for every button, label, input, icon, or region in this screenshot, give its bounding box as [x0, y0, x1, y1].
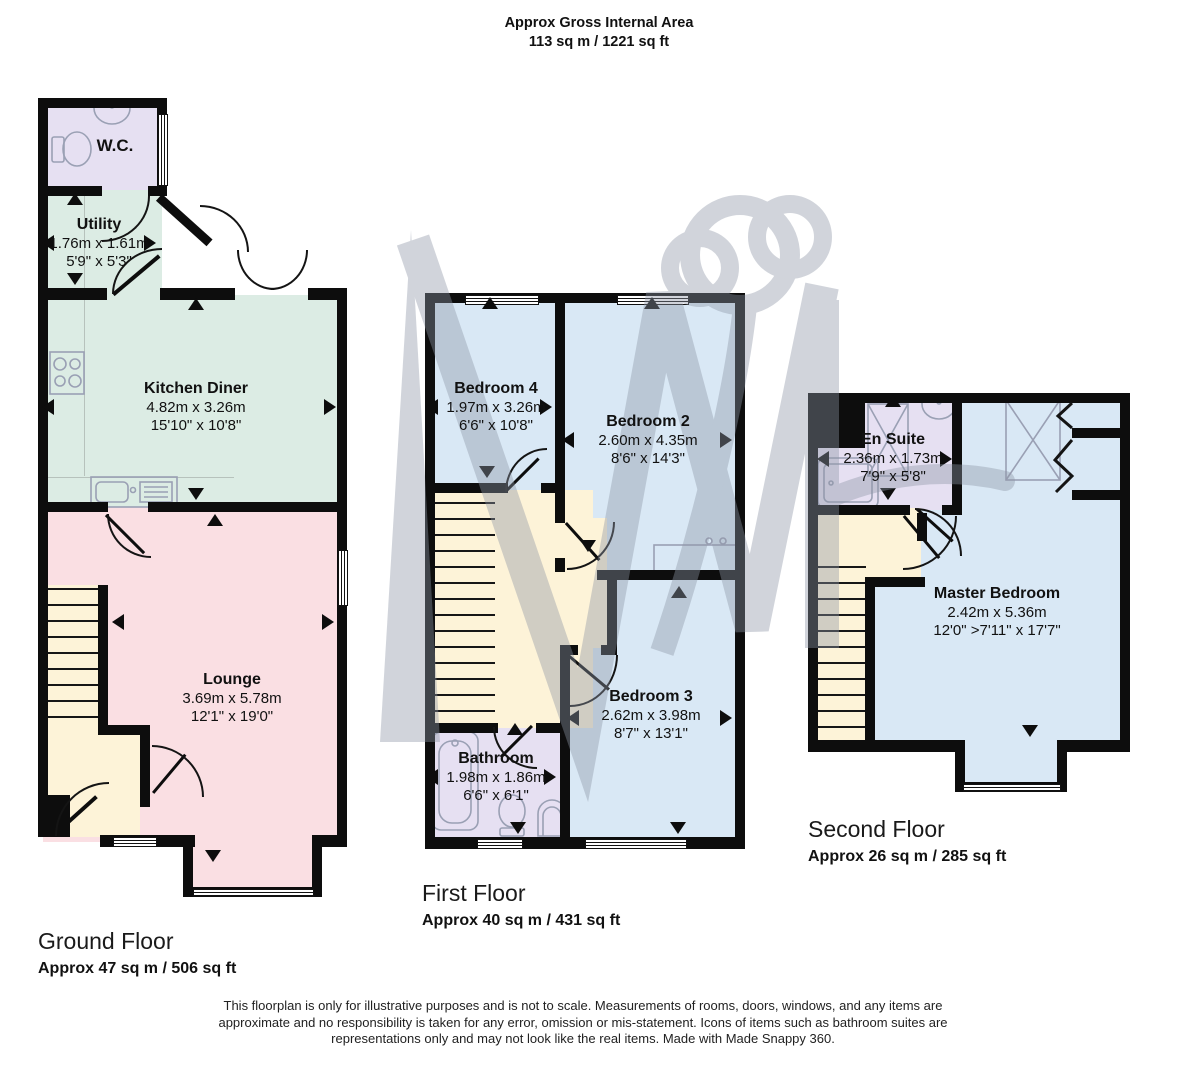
wall: [1072, 428, 1120, 438]
wall: [808, 740, 963, 752]
stairs: [433, 502, 495, 726]
room-name: W.C.: [97, 136, 134, 156]
room-dim-metric: 1.76m x 1.61m: [49, 235, 148, 253]
wall: [818, 505, 910, 515]
room-dim-imperial: 15'10" x 10'8": [144, 416, 248, 434]
room-label-bathroom: Bathroom 1.98m x 1.86m 6'6" x 6'1": [446, 750, 545, 804]
room-dim-metric: 2.36m x 1.73m: [843, 450, 942, 468]
direction-arrow-right: [720, 432, 732, 448]
room-name: Bathroom: [446, 750, 545, 769]
wall: [597, 570, 740, 580]
room-dim-imperial: 7'9" x 5'8": [843, 467, 942, 485]
floor-name: Ground Floor: [38, 928, 236, 955]
direction-arrow-up: [644, 297, 660, 309]
room-dim-imperial: 12'0" >7'11" x 17'7": [933, 621, 1060, 639]
direction-arrow-down: [510, 822, 526, 834]
room-name: Kitchen Diner: [144, 380, 248, 399]
wall: [555, 558, 565, 572]
room-dim-metric: 1.97m x 3.26m: [446, 399, 545, 417]
room-label-bedroom2: Bedroom 2 2.60m x 4.35m 8'6" x 14'3": [598, 413, 697, 467]
direction-arrow-down: [880, 488, 896, 500]
room-name: Bedroom 2: [598, 413, 697, 432]
room-name: En Suite: [843, 431, 942, 450]
wall: [1057, 740, 1130, 752]
room-dim-imperial: 12'1" x 19'0": [182, 707, 281, 725]
direction-arrow-left: [42, 399, 54, 415]
room-name: Bedroom 3: [601, 688, 700, 707]
room-name: Bedroom 4: [446, 380, 545, 399]
window: [158, 114, 168, 186]
door-swing-arc: [200, 205, 249, 252]
direction-arrow-down: [205, 850, 221, 862]
floor-name: First Floor: [422, 880, 620, 907]
window: [113, 837, 157, 847]
wall: [148, 502, 347, 512]
wall: [865, 577, 925, 587]
wall: [1120, 393, 1130, 750]
room-label-utility: Utility 1.76m x 1.61m 5'9" x 5'3": [49, 216, 148, 270]
direction-arrow-right: [720, 710, 732, 726]
room-label-bedroom4: Bedroom 4 1.97m x 3.26m 6'6" x 10'8": [446, 380, 545, 434]
wall: [98, 585, 108, 735]
direction-arrow-down: [580, 540, 596, 552]
direction-arrow-left: [562, 432, 574, 448]
wall: [148, 186, 167, 196]
direction-arrow-up: [188, 298, 204, 310]
window: [465, 295, 539, 305]
wall: [38, 98, 167, 108]
room-name: Utility: [49, 216, 148, 235]
direction-arrow-right: [324, 399, 336, 415]
room-name: Lounge: [182, 671, 281, 690]
wall: [1072, 490, 1120, 500]
floor-area: Approx 47 sq m / 506 sq ft: [38, 960, 236, 978]
floor-area: Approx 40 sq m / 431 sq ft: [422, 912, 620, 930]
room-dim-imperial: 6'6" x 6'1": [446, 786, 545, 804]
door-swing-arc: [237, 250, 274, 290]
direction-arrow-left: [426, 769, 438, 785]
floor-caption-ground: Ground Floor Approx 47 sq m / 506 sq ft: [38, 928, 236, 978]
stairs: [816, 566, 866, 742]
room-master-bay: [963, 745, 1059, 785]
room-dim-metric: 4.82m x 3.26m: [144, 399, 248, 417]
direction-arrow-up: [67, 193, 83, 205]
window: [477, 839, 523, 849]
wall: [140, 735, 150, 807]
wall: [536, 723, 565, 733]
wall: [601, 645, 617, 655]
direction-arrow-left: [567, 710, 579, 726]
wall: [952, 398, 962, 513]
direction-arrow-down: [188, 488, 204, 500]
floor-area: Approx 26 sq m / 285 sq ft: [808, 848, 1006, 866]
wall: [425, 293, 435, 849]
direction-arrow-right: [544, 769, 556, 785]
room-dim-metric: 2.42m x 5.36m: [933, 604, 1060, 622]
toilet-icon: [50, 126, 94, 172]
room-dim-imperial: 8'7" x 13'1": [601, 724, 700, 742]
room-name: Master Bedroom: [933, 585, 1060, 604]
room-dim-imperial: 5'9" x 5'3": [49, 252, 148, 270]
direction-arrow-right: [322, 614, 334, 630]
wall: [865, 585, 875, 748]
wall: [560, 645, 570, 837]
room-dim-metric: 2.62m x 3.98m: [601, 707, 700, 725]
direction-arrow-down: [1022, 725, 1038, 737]
floorplan-canvas: Approx Gross Internal Area 113 sq m / 12…: [0, 0, 1198, 1080]
direction-arrow-down: [479, 466, 495, 478]
footer-disclaimer: This floorplan is only for illustrative …: [213, 998, 953, 1048]
direction-arrow-left: [817, 451, 829, 467]
direction-arrow-down: [67, 273, 83, 285]
room-label-wc: W.C.: [97, 136, 134, 156]
direction-arrow-left: [112, 614, 124, 630]
window: [585, 839, 687, 849]
room-lounge-bay: [188, 840, 317, 890]
floor-caption-first: First Floor Approx 40 sq m / 431 sq ft: [422, 880, 620, 930]
direction-arrow-up: [507, 723, 523, 735]
window: [338, 550, 348, 606]
room-dim-metric: 2.60m x 4.35m: [598, 432, 697, 450]
room-label-kitchen: Kitchen Diner 4.82m x 3.26m 15'10" x 10'…: [144, 380, 248, 434]
room-dim-metric: 1.98m x 1.86m: [446, 769, 545, 787]
direction-arrow-up: [885, 395, 901, 407]
wall: [38, 288, 107, 300]
window: [193, 889, 314, 897]
wall: [38, 502, 108, 512]
header: Approx Gross Internal Area 113 sq m / 12…: [0, 14, 1198, 52]
wall: [425, 723, 498, 733]
room-label-ensuite: En Suite 2.36m x 1.73m 7'9" x 5'8": [843, 431, 942, 485]
room-dim-imperial: 6'6" x 10'8": [446, 416, 545, 434]
wall: [38, 98, 48, 835]
door-swing-arc: [271, 250, 308, 290]
floor-name: Second Floor: [808, 816, 1006, 843]
room-label-master-bedroom: Master Bedroom 2.42m x 5.36m 12'0" >7'11…: [933, 585, 1060, 639]
direction-arrow-up: [482, 297, 498, 309]
direction-arrow-up: [671, 586, 687, 598]
hob-icon: [48, 350, 86, 396]
header-area: 113 sq m / 1221 sq ft: [0, 33, 1198, 52]
wardrobe-icon: [1004, 398, 1062, 482]
floor-caption-second: Second Floor Approx 26 sq m / 285 sq ft: [808, 816, 1006, 866]
room-dim-imperial: 8'6" x 14'3": [598, 449, 697, 467]
wall: [942, 505, 962, 515]
room-dim-metric: 3.69m x 5.78m: [182, 690, 281, 708]
room-label-lounge: Lounge 3.69m x 5.78m 12'1" x 19'0": [182, 671, 281, 725]
wall: [425, 483, 508, 493]
window: [963, 784, 1061, 792]
header-title: Approx Gross Internal Area: [0, 14, 1198, 33]
direction-arrow-down: [670, 822, 686, 834]
direction-arrow-left: [426, 399, 438, 415]
stairs: [48, 588, 98, 728]
room-label-bedroom3: Bedroom 3 2.62m x 3.98m 8'7" x 13'1": [601, 688, 700, 742]
wall: [98, 725, 150, 735]
direction-arrow-up: [207, 514, 223, 526]
wall: [607, 580, 617, 653]
